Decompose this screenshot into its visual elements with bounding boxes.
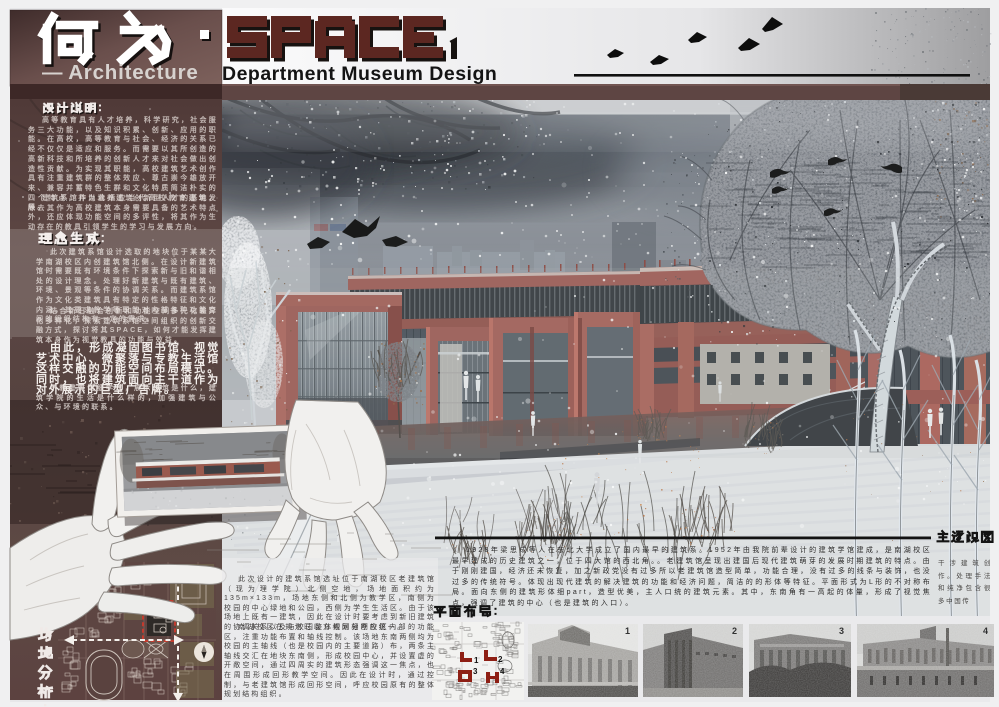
svg-text:Department Museum Design: Department Museum Design bbox=[222, 63, 497, 85]
svg-text:4: 4 bbox=[500, 667, 505, 676]
svg-text:1: 1 bbox=[474, 656, 479, 665]
svg-text:3: 3 bbox=[473, 667, 478, 676]
svg-text:2: 2 bbox=[498, 655, 503, 664]
svg-text:— Architecture: — Architecture bbox=[42, 61, 199, 84]
